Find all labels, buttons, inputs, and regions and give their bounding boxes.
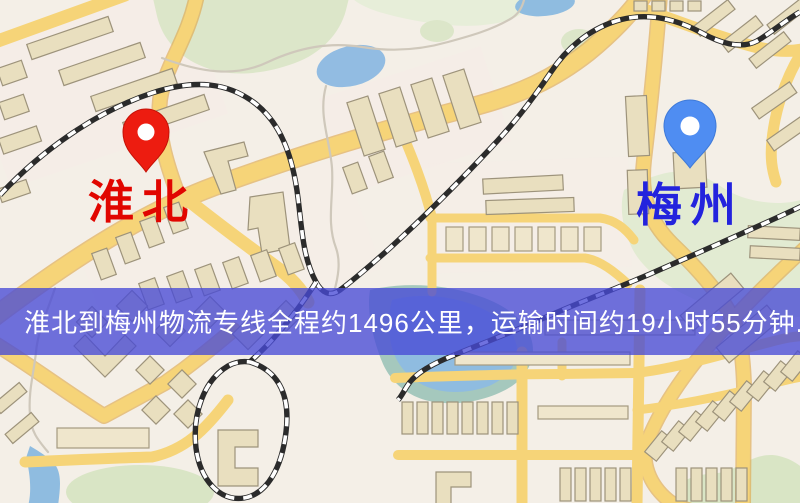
pin-hole: [138, 124, 155, 141]
map-view: 淮北 梅州 淮北到梅州物流专线全程约1496公里，运输时间约19小时55分钟.: [0, 0, 800, 503]
route-info-text: 淮北到梅州物流专线全程约1496公里，运输时间约19小时55分钟.: [0, 303, 800, 340]
destination-city-label: 梅州: [636, 182, 744, 228]
origin-city-label: 淮北: [88, 179, 196, 225]
map-artwork: [0, 0, 800, 503]
route-info-banner: 淮北到梅州物流专线全程约1496公里，运输时间约19小时55分钟.: [0, 288, 800, 355]
pin-hole: [681, 117, 700, 136]
